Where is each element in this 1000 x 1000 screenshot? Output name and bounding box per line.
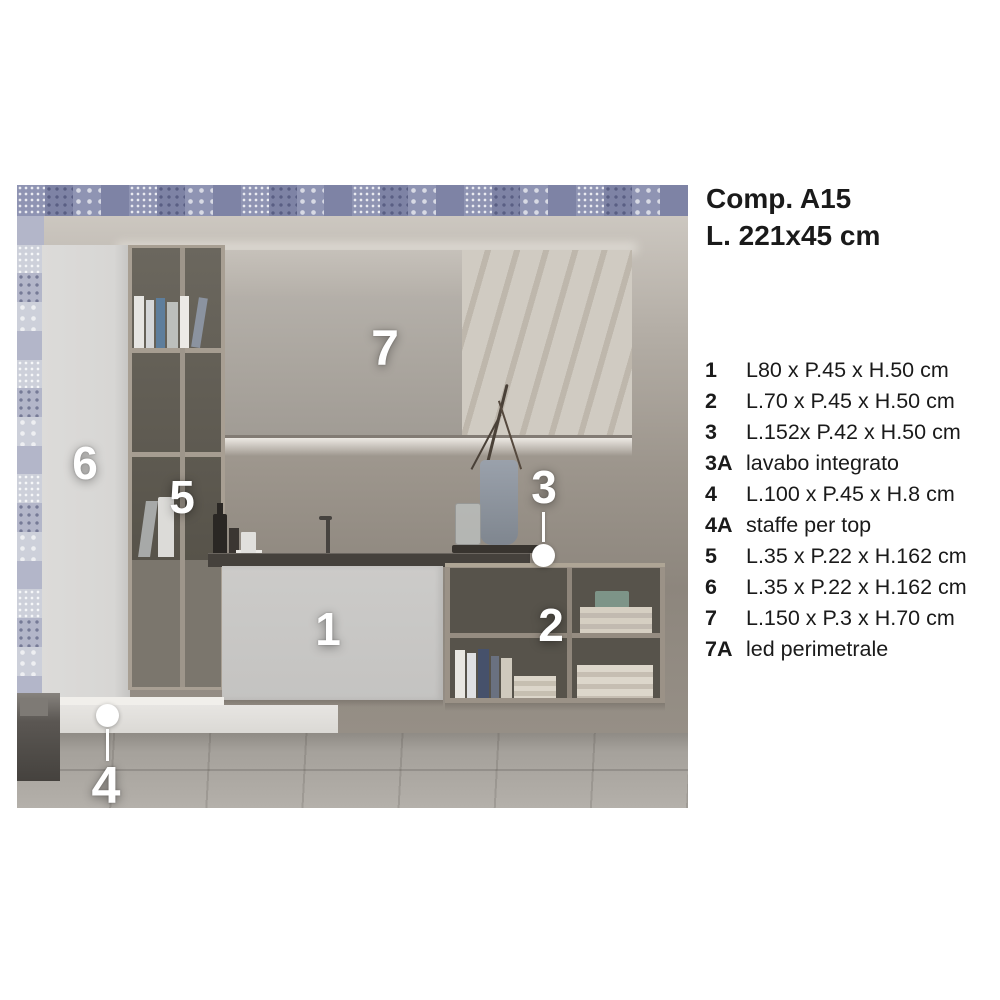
marker-3: 3 [531,464,557,510]
tile [185,185,213,216]
spec-row: 4 L.100 x P.45 x H.8 cm [705,479,995,510]
shelf-board [132,348,221,353]
dark-block-detail [20,698,48,716]
gray-vase [480,460,518,545]
shelf-divider [567,568,572,698]
spec-row: 4A staffe per top [705,510,995,541]
tile [17,273,44,302]
tile [17,185,45,216]
led-glow-below-mirror [225,438,632,456]
tile [17,647,44,676]
tile [17,589,44,618]
tile [17,216,44,245]
spec-code: 4A [705,513,746,538]
spec-desc: led perimetrale [746,637,888,662]
dark-side-block [17,693,60,781]
spec-code: 3A [705,451,746,476]
marker-3-line [542,512,545,542]
tile [17,561,44,590]
spec-code: 7 [705,606,746,631]
tile [492,185,520,216]
tile [17,474,44,503]
tile [576,185,604,216]
spec-desc: L.100 x P.45 x H.8 cm [746,482,955,507]
spec-row: 5 L.35 x P.22 x H.162 cm [705,541,995,572]
marker-4-dot [96,704,119,727]
spec-row: 7A led perimetrale [705,634,995,665]
books [455,643,565,698]
spec-code: 4 [705,482,746,507]
tile [324,185,352,216]
spec-row: 3A lavabo integrato [705,448,995,479]
spec-desc: L.152x P.42 x H.50 cm [746,420,961,445]
marker-4: 4 [92,760,121,808]
book-stack [580,607,652,634]
marker-5: 5 [169,474,195,520]
mirror-reflection-wood [462,250,632,435]
tile [73,185,101,216]
spec-code: 5 [705,544,746,569]
spec-list: 1 L80 x P.45 x H.50 cm 2 L.70 x P.45 x H… [705,355,995,665]
tile [17,245,44,274]
tile [17,446,44,475]
spec-desc: L.35 x P.22 x H.162 cm [746,575,967,600]
bottle [213,514,227,553]
mirror-item-7 [225,250,632,435]
marker-6: 6 [72,440,98,486]
tile [436,185,464,216]
marker-1: 1 [315,606,341,652]
shelf-bottom-panel [132,560,221,687]
glass-carafe [455,503,481,545]
tile-wall-left [17,216,44,733]
teal-box [595,591,629,608]
faucet [326,516,330,553]
mirror-reflection-ceiling [225,250,475,296]
tile [297,185,325,216]
book-stack [577,665,653,698]
marker-3-dot [532,544,555,567]
composition-size: L. 221x45 cm [706,217,991,254]
shelf-shadow [445,703,665,711]
tile [17,618,44,647]
tile [352,185,380,216]
marker-2: 2 [538,602,564,648]
tile [269,185,297,216]
spec-row: 1 L80 x P.45 x H.50 cm [705,355,995,386]
tile [17,360,44,389]
tile [548,185,576,216]
spec-desc: staffe per top [746,513,871,538]
spec-row: 7 L.150 x P.3 x H.70 cm [705,603,995,634]
spec-code: 3 [705,420,746,445]
tile [660,185,688,216]
tile [17,388,44,417]
open-shelf-item-5 [128,245,225,690]
spec-code: 6 [705,575,746,600]
cup [241,532,256,553]
spec-code: 1 [705,358,746,383]
spec-desc: L80 x P.45 x H.50 cm [746,358,949,383]
tile [17,417,44,446]
spec-desc: L.35 x P.22 x H.162 cm [746,544,967,569]
tile [520,185,548,216]
tile [464,185,492,216]
tile [17,302,44,331]
spec-row: 6 L.35 x P.22 x H.162 cm [705,572,995,603]
tile [632,185,660,216]
tile [604,185,632,216]
spec-row: 2 L.70 x P.45 x H.50 cm [705,386,995,417]
tile [408,185,436,216]
books [134,290,220,348]
spec-desc: L.150 x P.3 x H.70 cm [746,606,955,631]
spec-desc: L.70 x P.45 x H.50 cm [746,389,955,414]
tile [241,185,269,216]
spec-row: 3 L.152x P.42 x H.50 cm [705,417,995,448]
bench-front-item-4 [18,705,338,733]
tile [380,185,408,216]
tile [213,185,241,216]
shelf-board [132,452,221,457]
composition-name: Comp. A15 [706,180,991,217]
tile [101,185,129,216]
marker-7: 7 [371,323,399,373]
tile-wall-top [17,185,688,216]
composition-title: Comp. A15 L. 221x45 cm [706,180,991,254]
tile [17,503,44,532]
tile [129,185,157,216]
tile [45,185,73,216]
tile [17,331,44,360]
spec-desc: lavabo integrato [746,451,899,476]
spec-code: 2 [705,389,746,414]
tile [17,532,44,561]
product-photo: 7 6 5 3 1 2 4 [17,185,688,808]
spec-code: 7A [705,637,746,662]
tile [157,185,185,216]
